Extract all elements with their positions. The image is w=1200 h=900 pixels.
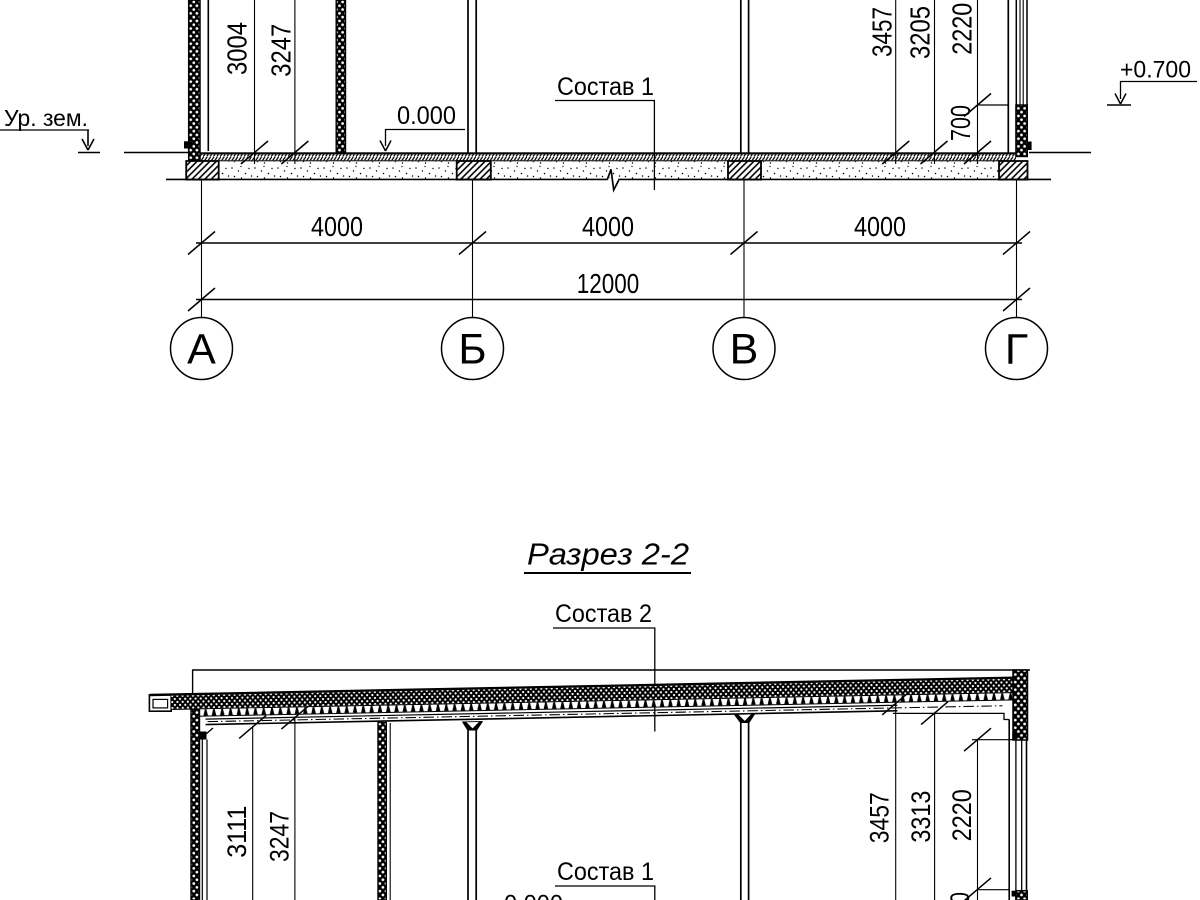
svg-text:+0.700: +0.700: [1120, 57, 1191, 84]
svg-text:2220: 2220: [947, 3, 978, 55]
svg-text:Состав 1: Состав 1: [557, 858, 654, 886]
svg-text:Состав 2: Состав 2: [555, 600, 652, 628]
svg-text:4000: 4000: [311, 211, 363, 242]
svg-text:4000: 4000: [582, 211, 634, 242]
svg-text:Г: Г: [1005, 326, 1028, 374]
svg-text:Ур. зем.: Ур. зем.: [4, 105, 88, 131]
svg-text:3247: 3247: [264, 811, 294, 862]
svg-text:700: 700: [945, 892, 975, 900]
svg-text:0.000: 0.000: [504, 891, 563, 900]
svg-text:В: В: [730, 326, 759, 374]
svg-text:Б: Б: [458, 326, 486, 374]
svg-text:4000: 4000: [854, 211, 906, 242]
svg-text:0.000: 0.000: [397, 102, 456, 130]
svg-text:3004: 3004: [221, 22, 252, 75]
svg-text:700: 700: [945, 105, 976, 141]
svg-text:12000: 12000: [577, 268, 640, 299]
svg-text:Состав 1: Состав 1: [557, 73, 654, 101]
svg-text:3205: 3205: [905, 6, 936, 59]
svg-text:2220: 2220: [947, 789, 977, 841]
svg-text:3313: 3313: [906, 791, 936, 843]
svg-text:3111: 3111: [222, 806, 252, 858]
svg-text:3457: 3457: [865, 792, 895, 843]
svg-text:3457: 3457: [866, 7, 897, 57]
svg-text:3247: 3247: [265, 24, 296, 77]
svg-text:А: А: [187, 326, 216, 374]
svg-text:Разрез 2-2: Разрез 2-2: [527, 537, 689, 572]
